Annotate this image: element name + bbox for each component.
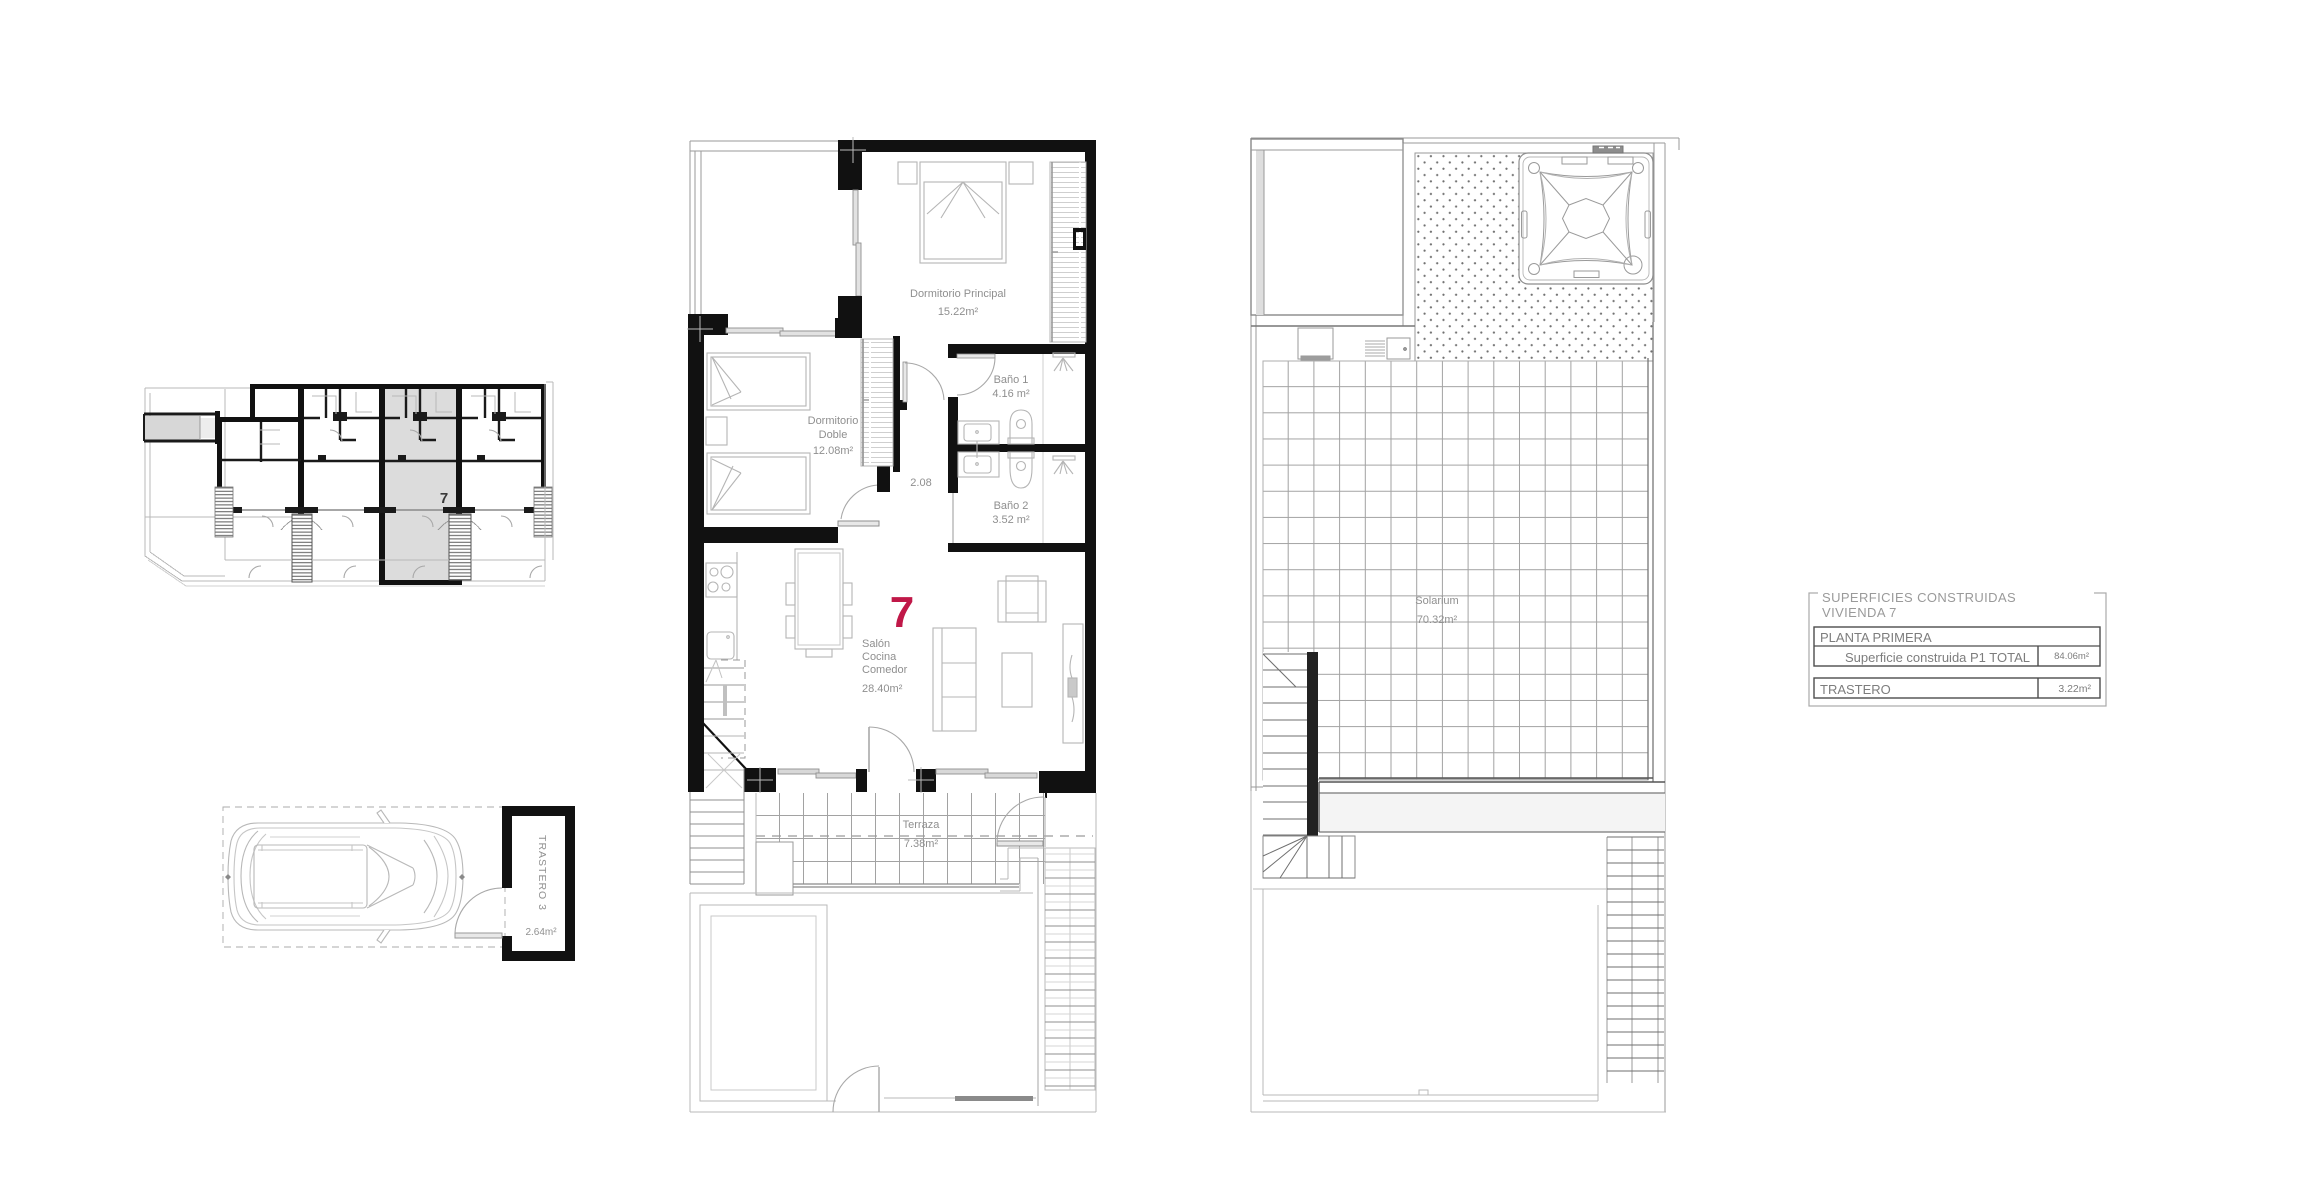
svg-text:3.22m²: 3.22m² xyxy=(2058,683,2091,695)
svg-text:Comedor: Comedor xyxy=(862,664,908,676)
svg-text:2.08: 2.08 xyxy=(910,477,931,489)
svg-text:84.06m²: 84.06m² xyxy=(2054,651,2089,662)
svg-text:TRASTERO 3: TRASTERO 3 xyxy=(536,835,548,911)
svg-text:7: 7 xyxy=(440,490,448,507)
svg-text:7.38m²: 7.38m² xyxy=(904,838,939,850)
svg-text:Baño 1: Baño 1 xyxy=(994,374,1029,386)
svg-text:2.64m²: 2.64m² xyxy=(525,927,557,938)
svg-text:Dormitorio: Dormitorio xyxy=(808,415,859,427)
svg-text:Solarium: Solarium xyxy=(1415,595,1458,607)
svg-text:7: 7 xyxy=(890,588,914,637)
svg-text:SUPERFICIES CONSTRUIDAS: SUPERFICIES CONSTRUIDAS xyxy=(1822,590,2016,605)
svg-text:Dormitorio Principal: Dormitorio Principal xyxy=(910,288,1006,300)
svg-text:3.52 m²: 3.52 m² xyxy=(992,514,1030,526)
svg-text:70.32m²: 70.32m² xyxy=(1417,614,1458,626)
svg-text:VIVIENDA 7: VIVIENDA 7 xyxy=(1822,605,1897,620)
svg-text:PLANTA PRIMERA: PLANTA PRIMERA xyxy=(1820,630,1932,645)
svg-text:TRASTERO: TRASTERO xyxy=(1820,682,1891,697)
svg-text:15.22m²: 15.22m² xyxy=(938,306,979,318)
svg-text:Baño 2: Baño 2 xyxy=(994,500,1029,512)
svg-text:Doble: Doble xyxy=(819,429,848,441)
svg-text:Superficie construida P1 TOTAL: Superficie construida P1 TOTAL xyxy=(1845,650,2030,665)
svg-text:Cocina: Cocina xyxy=(862,651,897,663)
svg-text:4.16 m²: 4.16 m² xyxy=(992,388,1030,400)
svg-text:28.40m²: 28.40m² xyxy=(862,683,903,695)
svg-text:12.08m²: 12.08m² xyxy=(813,445,854,457)
svg-text:Salón: Salón xyxy=(862,638,890,650)
svg-text:Terraza: Terraza xyxy=(903,819,941,831)
